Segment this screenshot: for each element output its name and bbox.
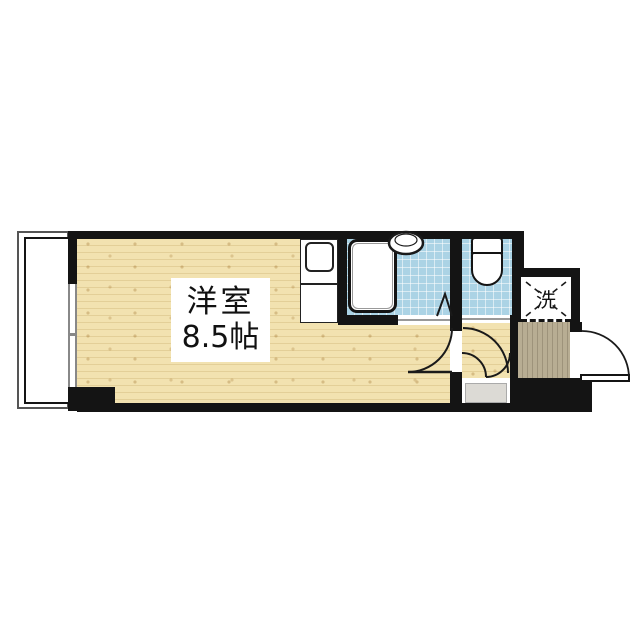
wall-under-bathtub: [338, 315, 398, 325]
laundry-label: 洗: [521, 277, 571, 319]
front-door-opening: [570, 332, 582, 378]
hallway-floor: [462, 323, 510, 378]
laundry-label-text: 洗: [536, 284, 556, 313]
entrance-floor: [518, 322, 570, 378]
toilet-bowl: [471, 252, 503, 286]
wall-toilet-right: [512, 231, 524, 268]
front-door-leaf: [580, 374, 630, 382]
wall-room-hall-upper: [450, 315, 462, 331]
entrance-step: [465, 383, 507, 403]
balcony-inner: [24, 237, 69, 404]
bathroom-threshold-line: [398, 319, 450, 321]
wall-under-step: [462, 403, 510, 412]
front-door-arc: [582, 331, 629, 378]
window-left-mullion: [68, 333, 77, 336]
floorplan-canvas: 洗 洋室 8.5帖: [0, 0, 640, 640]
toilet-threshold-line: [462, 318, 510, 320]
window-left: [68, 284, 77, 388]
wall-entrance-right-nub: [570, 322, 582, 332]
wall-bath-toilet: [450, 231, 462, 315]
wall-room-hall-lower: [450, 372, 462, 412]
wall-bottom: [77, 403, 462, 412]
kitchen-counter-divider: [300, 283, 338, 285]
wall-bottom-right: [510, 378, 592, 412]
wall-left-upper: [68, 231, 77, 284]
wall-kitchen-bath: [338, 231, 347, 325]
main-room-label-line2: 8.5帖: [182, 320, 260, 356]
kitchen-sink: [305, 242, 334, 272]
room-door-opening: [450, 331, 462, 372]
bathtub-inner-line: [352, 243, 393, 309]
main-room-label-line1: 洋室: [187, 284, 255, 320]
main-room-label: 洋室 8.5帖: [171, 278, 270, 362]
